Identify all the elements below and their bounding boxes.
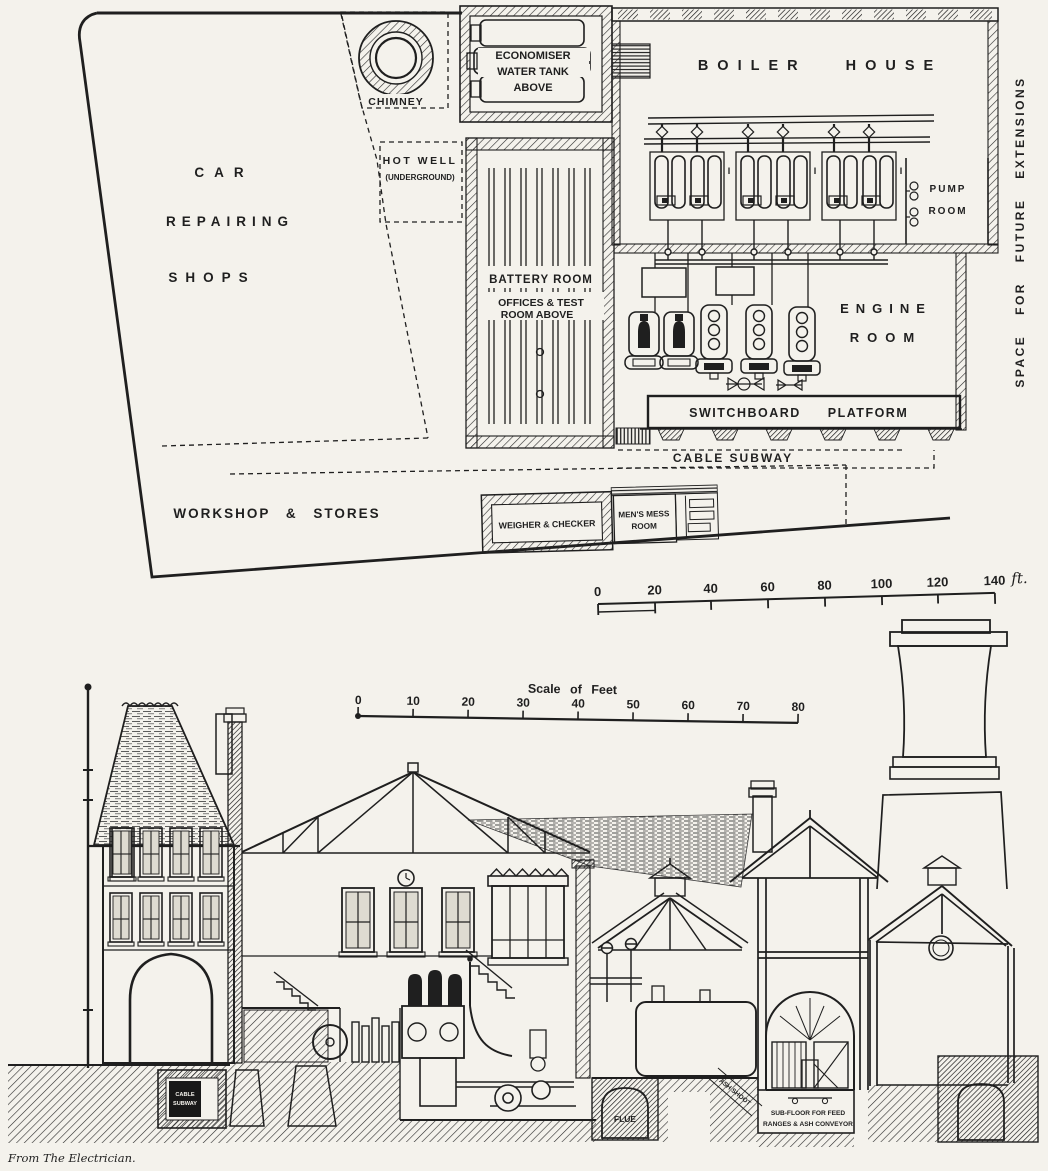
label-space-future-extensions: SPACE FOR FUTURE EXTENSIONS [1013, 76, 1027, 387]
label-chimney: CHIMNEY [368, 96, 423, 108]
label-engine: ENGINE [840, 301, 932, 316]
boiler-mark-3: I [900, 166, 903, 176]
label-hot-well: HOT WELL [383, 155, 458, 167]
plan-scale-40: 40 [703, 581, 718, 596]
label-cable-section: CABLE [175, 1092, 195, 1098]
label-flue: FLUE [614, 1114, 637, 1124]
plan-scale-120: 120 [926, 574, 948, 590]
switch-panels [352, 1018, 399, 1062]
label-battery-room: BATTERY ROOM [489, 274, 593, 286]
flue-section: FLUE [592, 1078, 658, 1140]
label-subfloor-2: RANGES & ASH CONVEYOR [763, 1121, 853, 1128]
party-wall [228, 722, 242, 1063]
plan-scale-60: 60 [760, 579, 775, 594]
label-subfloor-1: SUB-FLOOR FOR FEED [771, 1110, 846, 1117]
label-subway-section: SUBWAY [173, 1101, 197, 1107]
label-above: ABOVE [513, 82, 552, 94]
label-repairing: REPAIRING [166, 214, 294, 229]
economiser-building: ECONOMISER WATER TANK ABOVE [460, 6, 612, 122]
right-arch-duct [938, 1056, 1038, 1142]
label-car: CAR [194, 165, 253, 180]
label-offices-test: OFFICES & TEST [498, 297, 584, 309]
label-pump: PUMP [930, 184, 967, 195]
label-underground: (UNDERGROUND) [385, 173, 455, 182]
section-scale-50: 50 [626, 697, 640, 711]
section-scale-title: Scale of Feet [528, 682, 618, 697]
label-workshop-stores: WORKSHOP & STORES [173, 506, 380, 521]
label-water-tank: WATER TANK [497, 66, 569, 78]
section-scale-20: 20 [461, 695, 475, 709]
section-scale-0: 0 [355, 693, 362, 707]
plan-scale-unit: ft. [1010, 569, 1028, 587]
section-scale-70: 70 [736, 699, 750, 713]
label-boiler-house: BOILER HOUSE [698, 58, 942, 74]
engine-hall-windows [339, 888, 477, 957]
label-mess-room: ROOM [631, 522, 657, 532]
section-scale-30: 30 [516, 695, 530, 709]
section-scale-80: 80 [791, 700, 805, 714]
cable-subway-section: CABLE SUBWAY [158, 1070, 226, 1128]
boiler-mark-2: I [814, 166, 817, 176]
plan-scale-140: 140 [983, 573, 1005, 589]
platform-ramp [616, 428, 650, 444]
plan-scale-100: 100 [870, 576, 892, 592]
label-platform: PLATFORM [828, 406, 909, 420]
label-shops: SHOPS [168, 270, 255, 285]
section-scale-40: 40 [571, 696, 585, 710]
label-pump-room: ROOM [928, 206, 967, 217]
scanned-plate: CAR REPAIRING SHOPS CHIMNEY HOT WELL (UN… [0, 0, 1048, 1171]
label-engine-room: ROOM [850, 330, 922, 345]
plan-scale-20: 20 [647, 582, 662, 597]
label-economiser: ECONOMISER [495, 50, 570, 62]
plan-scale-0: 0 [594, 584, 602, 599]
power-station-drawing: CAR REPAIRING SHOPS CHIMNEY HOT WELL (UN… [0, 0, 1048, 1171]
section-scale-60: 60 [681, 698, 695, 712]
plan-scale-80: 80 [817, 577, 832, 592]
label-mens-mess: MEN'S MESS [618, 509, 670, 519]
engine-boiler-wall [576, 866, 590, 1078]
source-caption: From The Electrician. [7, 1151, 136, 1165]
label-room-above: ROOM ABOVE [501, 309, 574, 321]
label-switchboard: SWITCHBOARD [689, 406, 801, 420]
section-scale-10: 10 [406, 694, 420, 708]
flue-duct-plan [612, 44, 650, 78]
boiler-mark-1: I [728, 166, 731, 176]
label-cable-subway-plan: CABLE SUBWAY [673, 451, 793, 465]
